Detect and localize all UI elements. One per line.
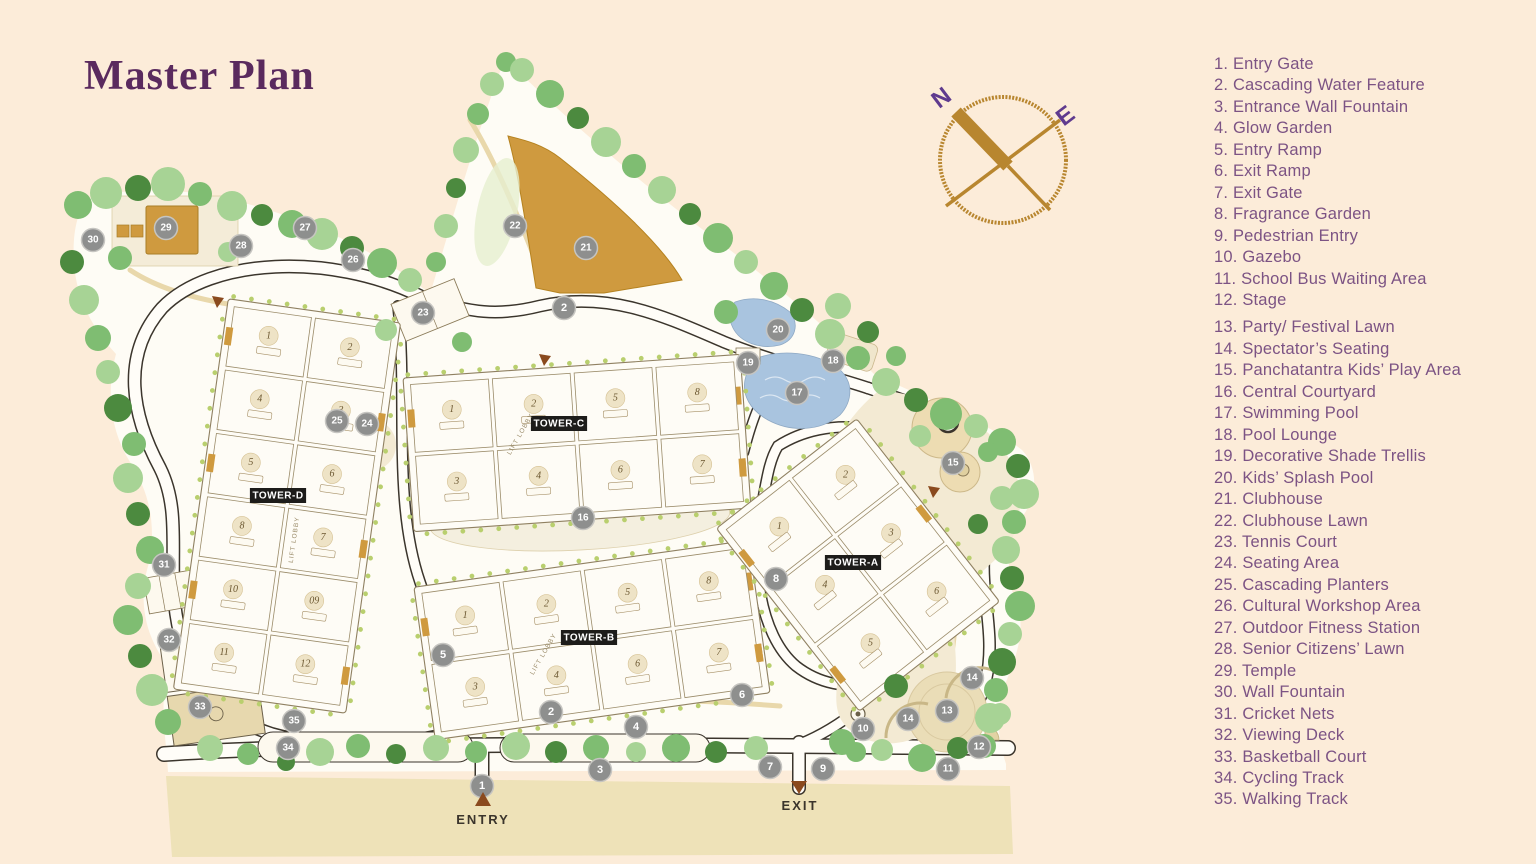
map-marker-14: 14 [897,708,920,731]
unit-area-chip [603,409,627,418]
legend-item-19: 19. Decorative Shade Trellis [1214,446,1529,467]
tree [217,191,247,221]
tree [734,250,758,274]
tree [467,103,489,125]
svg-text:14: 14 [902,714,914,725]
svg-text:23: 23 [417,308,429,319]
legend-item-12: 12. Stage [1214,290,1529,311]
map-marker-2: 2 [540,701,563,724]
unit-number: 6 [934,586,939,597]
map-marker-22: 22 [504,215,527,238]
map-marker-24: 24 [356,413,379,436]
tree [815,319,845,349]
svg-text:20: 20 [772,325,784,336]
balcony-accent [407,409,415,427]
compass-north-label: N [926,82,956,114]
tree [908,744,936,772]
legend-item-34: 34. Cycling Track [1214,768,1529,789]
unit-number: 2 [531,398,536,409]
unit-number: 11 [219,647,228,658]
tree [136,674,168,706]
tree [998,622,1022,646]
tree [679,203,701,225]
svg-text:33: 33 [194,702,206,713]
tree [126,502,150,526]
legend-item-33: 33. Basketball Court [1214,747,1529,768]
legend-item-2: 2. Cascading Water Feature [1214,75,1529,96]
legend-item-9: 9. Pedestrian Entry [1214,226,1529,247]
tree [872,368,900,396]
tree [703,223,733,253]
svg-text:3: 3 [597,764,603,776]
legend: 1. Entry Gate2. Cascading Water Feature3… [1214,54,1529,811]
tree [1002,510,1026,534]
map-marker-25: 25 [326,410,349,433]
tree [188,182,212,206]
tree [591,127,621,157]
svg-text:31: 31 [158,560,170,571]
compass-east-label: E [1051,100,1080,131]
tree [453,137,479,163]
unit-number: 6 [618,465,623,476]
legend-item-1: 1. Entry Gate [1214,54,1529,75]
exit-label: EXIT [782,798,819,813]
tree [984,678,1008,702]
svg-text:15: 15 [947,458,959,469]
map-marker-30: 30 [82,229,105,252]
tree [306,738,334,766]
legend-item-21: 21. Clubhouse [1214,489,1529,510]
tree [423,735,449,761]
tree [648,176,676,204]
unit-number: 4 [554,670,559,681]
map-marker-20: 20 [767,319,790,342]
svg-text:22: 22 [509,221,521,232]
tree [125,175,151,201]
tree [909,425,931,447]
tree [346,734,370,758]
legend-item-27: 27. Outdoor Fitness Station [1214,618,1529,639]
tree [104,394,132,422]
legend-item-7: 7. Exit Gate [1214,183,1529,204]
unit-number: 3 [472,681,478,692]
legend-item-23: 23. Tennis Court [1214,532,1529,553]
legend-item-3: 3. Entrance Wall Fountain [1214,97,1529,118]
tree [386,744,406,764]
unit-number: 10 [228,584,238,595]
map-marker-26: 26 [342,249,365,272]
svg-text:30: 30 [87,235,99,246]
legend-item-15: 15. Panchatantra Kids’ Play Area [1214,360,1529,381]
tree [968,514,988,534]
tower-a-label: TOWER-A [827,558,878,569]
tree [964,414,988,438]
map-marker-27: 27 [294,217,317,240]
tree [989,703,1011,725]
tree [155,709,181,735]
svg-text:9: 9 [820,763,826,775]
svg-text:12: 12 [973,742,985,753]
tree [992,536,1020,564]
legend-item-16: 16. Central Courtyard [1214,382,1529,403]
tree [930,398,962,430]
bottom-road-band [166,776,1013,857]
tree [85,325,111,351]
unit-area-chip [685,404,709,413]
tree [367,248,397,278]
map-marker-6: 6 [731,684,754,707]
unit-area-chip [526,487,550,496]
svg-text:16: 16 [577,513,589,524]
unit-area-chip [440,421,464,430]
tree [622,154,646,178]
tree [151,167,185,201]
unit-number: 2 [544,599,549,610]
map-marker-31: 31 [153,554,176,577]
svg-text:26: 26 [347,255,359,266]
tree [846,346,870,370]
svg-text:10: 10 [857,724,869,735]
tree [536,80,564,108]
tree [886,346,906,366]
map-marker-13: 13 [936,700,959,723]
tree [705,741,727,763]
unit-number: 8 [239,520,244,531]
balcony-accent [738,458,746,476]
unit-number: 1 [266,330,271,341]
unit-number: 1 [463,610,468,621]
tree [904,388,928,412]
tree [108,246,132,270]
tree [1005,591,1035,621]
legend-item-5: 5. Entry Ramp [1214,140,1529,161]
legend-item-30: 30. Wall Fountain [1214,682,1529,703]
svg-text:34: 34 [282,743,294,754]
tree [884,674,908,698]
unit-number: 5 [625,587,630,598]
legend-item-28: 28. Senior Citizens’ Lawn [1214,639,1529,660]
map-marker-34: 34 [277,737,300,760]
tree [510,58,534,82]
legend-item-6: 6. Exit Ramp [1214,161,1529,182]
tree [1006,454,1030,478]
tree [502,732,530,760]
map-marker-2: 2 [553,297,576,320]
tree [480,72,504,96]
svg-text:7: 7 [767,761,773,773]
legend-item-24: 24. Seating Area [1214,553,1529,574]
unit-number: 6 [635,658,640,669]
map-marker-5: 5 [432,644,455,667]
map-marker-10: 10 [852,718,875,741]
map-marker-18: 18 [822,350,845,373]
tree [113,463,143,493]
tree [90,177,122,209]
map-marker-33: 33 [189,696,212,719]
map-marker-21: 21 [575,237,598,260]
legend-item-26: 26. Cultural Workshop Area [1214,596,1529,617]
svg-text:6: 6 [739,689,745,701]
entry-label: ENTRY [456,812,510,827]
unit-number: 2 [843,469,848,480]
tree [113,605,143,635]
tree [426,252,446,272]
map-marker-19: 19 [737,352,760,375]
unit-number: 1 [777,521,782,532]
master-plan-poster: Master Plan [0,0,1536,864]
svg-text:4: 4 [633,721,640,733]
tree [1009,479,1039,509]
map-marker-3: 3 [589,759,612,782]
tree [714,300,738,324]
legend-item-29: 29. Temple [1214,661,1529,682]
unit-number: 5 [248,457,253,468]
site-map: 12435687100911121258346712583467124356 T… [0,0,1180,864]
tree [69,285,99,315]
svg-text:21: 21 [580,243,592,254]
map-marker-28: 28 [230,235,253,258]
tree [465,741,487,763]
map-marker-35: 35 [283,710,306,733]
svg-text:1: 1 [479,780,485,792]
svg-text:13: 13 [941,706,953,717]
tree [846,742,866,762]
unit-number: 8 [706,576,711,587]
legend-item-18: 18. Pool Lounge [1214,425,1529,446]
map-marker-15: 15 [942,452,965,475]
legend-item-8: 8. Fragrance Garden [1214,204,1529,225]
unit-area-chip [608,481,632,490]
legend-item-14: 14. Spectator’s Seating [1214,339,1529,360]
unit-number: 3 [453,476,459,487]
map-marker-8: 8 [765,568,788,591]
unit-number: 3 [888,528,894,539]
tree [237,743,259,765]
tree [251,204,273,226]
unit-number: 5 [613,393,618,404]
map-marker-17: 17 [786,382,809,405]
map-marker-11: 11 [937,758,960,781]
unit-number: 6 [330,469,335,480]
svg-text:17: 17 [791,388,803,399]
legend-item-20: 20. Kids’ Splash Pool [1214,468,1529,489]
svg-text:8: 8 [773,573,779,585]
compass-rose: N E [926,82,1080,223]
unit-number: 4 [257,394,262,405]
tree [64,191,92,219]
unit-number: 4 [822,579,827,590]
tree [857,321,879,343]
tree [375,319,397,341]
map-marker-14: 14 [961,667,984,690]
tree [825,293,851,319]
map-marker-4: 4 [625,716,648,739]
tree [452,332,472,352]
tree [1000,566,1024,590]
svg-text:11: 11 [943,764,954,775]
tree [626,742,646,762]
svg-text:25: 25 [331,416,343,427]
tree [122,432,146,456]
tree [125,573,151,599]
legend-item-13: 13. Party/ Festival Lawn [1214,317,1529,338]
svg-text:5: 5 [440,649,446,661]
tree [197,735,223,761]
unit-number: 4 [536,470,541,481]
unit-number: 8 [695,387,700,398]
tree [662,734,690,762]
tree [96,360,120,384]
tree [988,648,1016,676]
svg-text:28: 28 [235,241,247,252]
unit-area-chip [690,476,714,485]
tower-d-label: TOWER-D [252,491,303,502]
tower-b-label: TOWER-B [563,633,614,644]
legend-item-4: 4. Glow Garden [1214,118,1529,139]
tree [545,741,567,763]
map-marker-29: 29 [155,217,178,240]
map-marker-32: 32 [158,629,181,652]
tree [583,735,609,761]
svg-text:18: 18 [827,356,839,367]
tree [446,178,466,198]
map-marker-23: 23 [412,302,435,325]
tree [128,644,152,668]
svg-text:19: 19 [742,358,754,369]
unit-number: 12 [300,659,310,670]
legend-item-31: 31. Cricket Nets [1214,704,1529,725]
tower-c-label: TOWER-C [533,419,584,430]
svg-text:2: 2 [548,706,554,718]
map-marker-7: 7 [759,756,782,779]
unit-number: 5 [868,638,873,649]
unit-number: 2 [347,342,352,353]
tree [871,739,893,761]
tree [978,442,998,462]
svg-text:2: 2 [561,302,567,314]
unit-area-chip [445,493,469,502]
map-marker-12: 12 [968,736,991,759]
tree [567,107,589,129]
svg-text:32: 32 [163,635,175,646]
svg-text:14: 14 [966,673,978,684]
map-marker-16: 16 [572,507,595,530]
tree [398,268,422,292]
legend-item-11: 11. School Bus Waiting Area [1214,269,1529,290]
svg-text:27: 27 [299,223,311,234]
tree [434,214,458,238]
tree [60,250,84,274]
tree [990,486,1014,510]
svg-text:29: 29 [160,223,172,234]
tree [947,737,969,759]
legend-item-32: 32. Viewing Deck [1214,725,1529,746]
tree [760,272,788,300]
legend-item-35: 35. Walking Track [1214,789,1529,810]
legend-item-17: 17. Swimming Pool [1214,403,1529,424]
legend-item-25: 25. Cascading Planters [1214,575,1529,596]
svg-text:24: 24 [361,419,373,430]
legend-item-10: 10. Gazebo [1214,247,1529,268]
unit-number: 1 [449,404,454,415]
unit-number: 09 [309,595,319,606]
legend-item-22: 22. Clubhouse Lawn [1214,511,1529,532]
svg-text:35: 35 [288,716,300,727]
tree [790,298,814,322]
map-marker-9: 9 [812,758,835,781]
